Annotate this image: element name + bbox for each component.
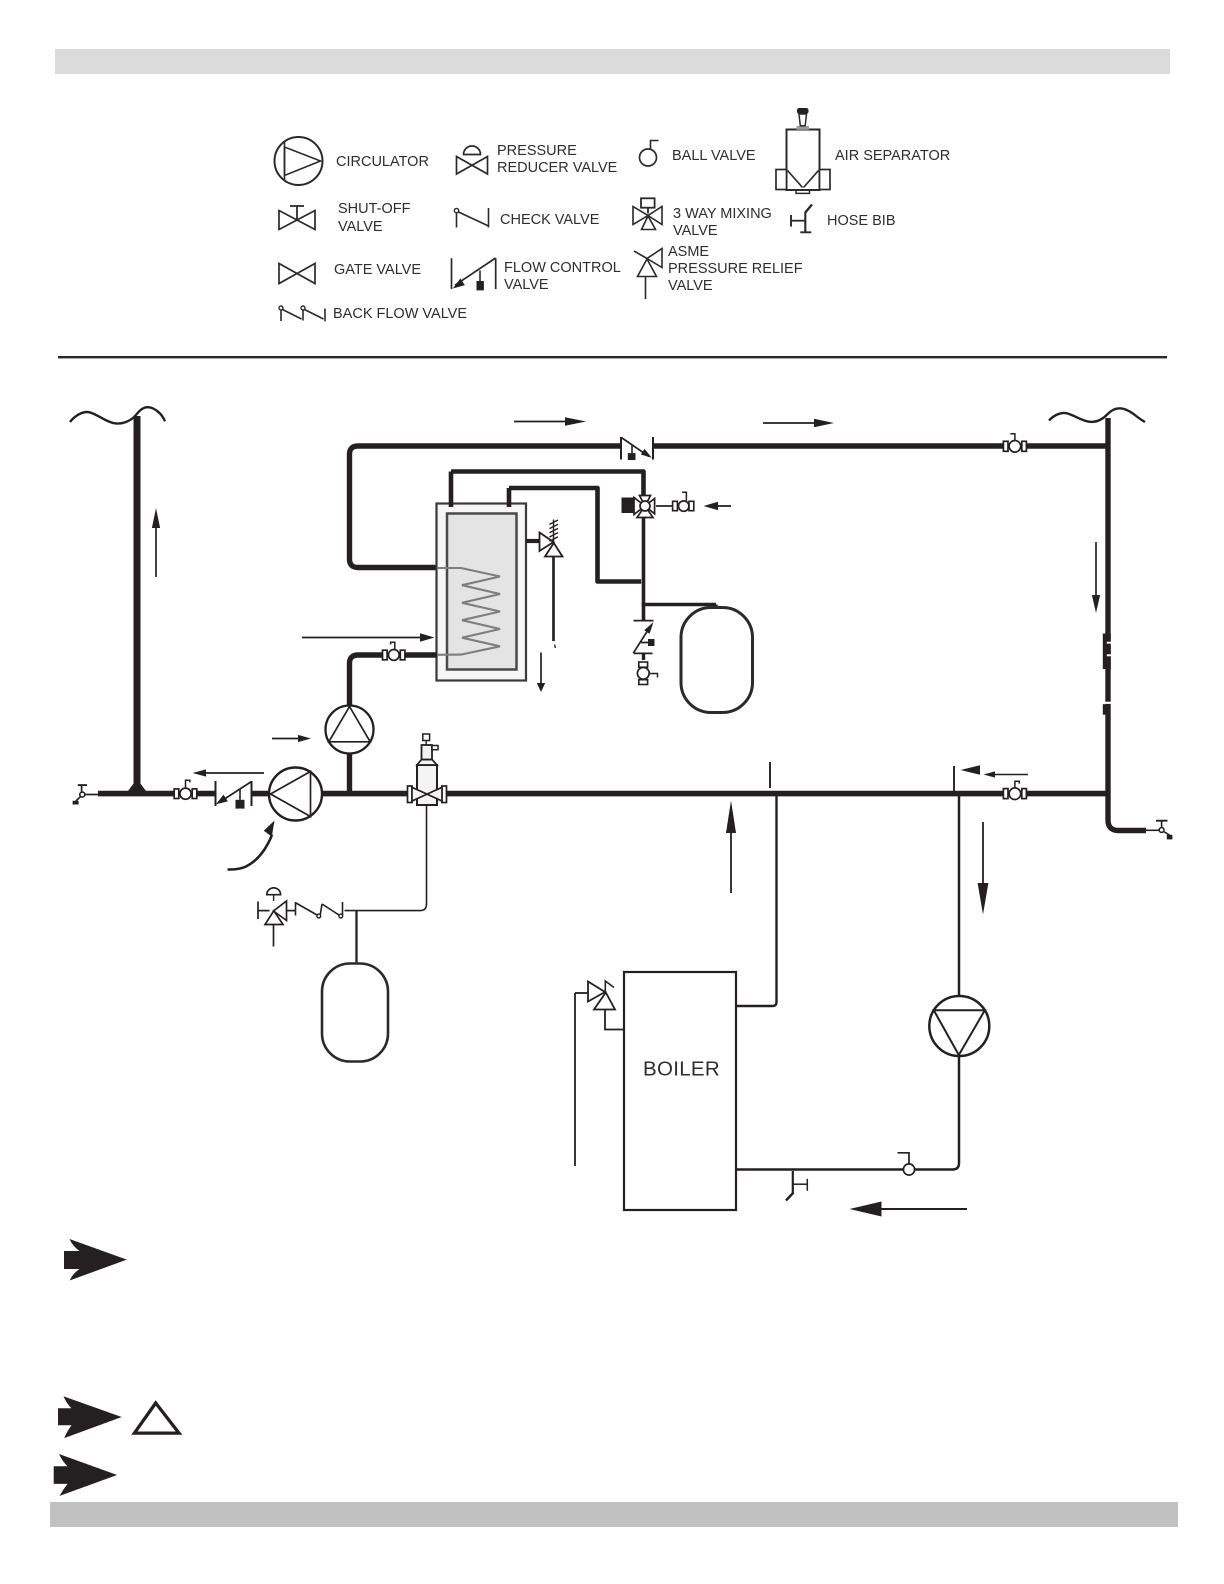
svg-text:VALVE: VALVE [673,223,718,239]
svg-text:BACK FLOW VALVE: BACK FLOW VALVE [333,306,467,322]
svg-text:VALVE: VALVE [338,219,383,235]
svg-text:SHUT-OFF: SHUT-OFF [338,201,411,217]
svg-text:3 WAY MIXING: 3 WAY MIXING [673,206,772,222]
svg-text:PRESSURE: PRESSURE [497,143,577,159]
svg-text:PRESSURE RELIEF: PRESSURE RELIEF [668,261,803,277]
svg-text:BOILER: BOILER [643,1058,720,1081]
svg-text:BALL VALVE: BALL VALVE [672,148,756,164]
svg-text:VALVE: VALVE [668,278,713,294]
svg-text:HOSE BIB: HOSE BIB [827,213,896,229]
svg-text:REDUCER VALVE: REDUCER VALVE [497,160,618,176]
svg-text:ASME: ASME [668,244,709,260]
svg-text:GATE VALVE: GATE VALVE [334,262,421,278]
svg-text:AIR SEPARATOR: AIR SEPARATOR [835,148,950,164]
svg-text:CHECK VALVE: CHECK VALVE [500,212,600,228]
svg-text:FLOW CONTROL: FLOW CONTROL [504,260,621,276]
svg-text:VALVE: VALVE [504,277,549,293]
svg-text:CIRCULATOR: CIRCULATOR [336,154,429,170]
